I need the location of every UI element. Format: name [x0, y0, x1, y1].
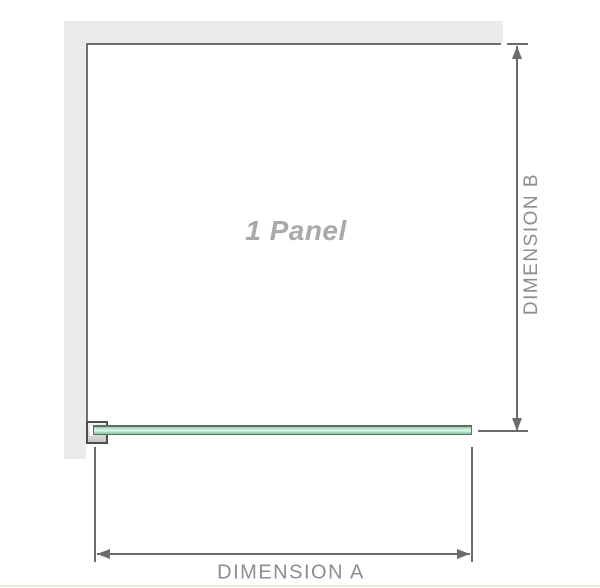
arrow-left-icon	[97, 549, 110, 559]
arrow-right-icon	[457, 549, 470, 559]
arrow-up-icon	[512, 46, 522, 59]
wall-top	[64, 21, 503, 43]
dimension-b-line	[516, 46, 518, 432]
dimension-b-top-tick	[507, 43, 528, 45]
arrow-down-icon	[512, 418, 522, 431]
glass-panel-bar	[93, 425, 472, 435]
bottom-divider	[0, 585, 600, 587]
wall-left	[64, 21, 86, 459]
dimension-b-label: DIMENSION B	[521, 173, 543, 315]
dimension-a-extension-left	[94, 447, 96, 562]
dimension-a-line	[97, 553, 470, 555]
shower-panel-diagram: 1 Panel DIMENSION B DIMENSION A	[0, 0, 600, 588]
dimension-a-extension-right	[471, 447, 473, 562]
panel-outline-top	[87, 43, 501, 45]
panel-outline-left	[86, 43, 88, 422]
dimension-a-label: DIMENSION A	[217, 562, 365, 585]
panel-count-label: 1 Panel	[245, 215, 347, 247]
